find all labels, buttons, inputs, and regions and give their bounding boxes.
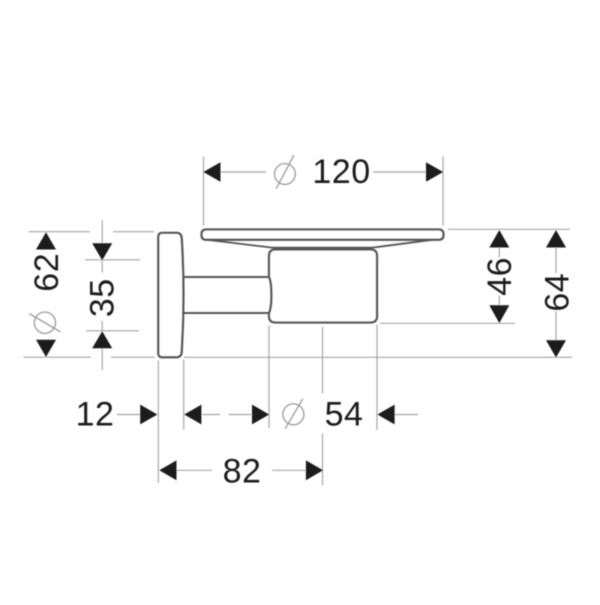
svg-text:64: 64: [539, 273, 577, 312]
svg-text:35: 35: [83, 278, 121, 317]
svg-text:54: 54: [325, 396, 364, 434]
svg-text:120: 120: [312, 153, 370, 191]
svg-text:46: 46: [481, 257, 519, 296]
svg-text:82: 82: [223, 453, 262, 491]
svg-text:62: 62: [28, 253, 66, 292]
svg-text:12: 12: [76, 396, 115, 434]
